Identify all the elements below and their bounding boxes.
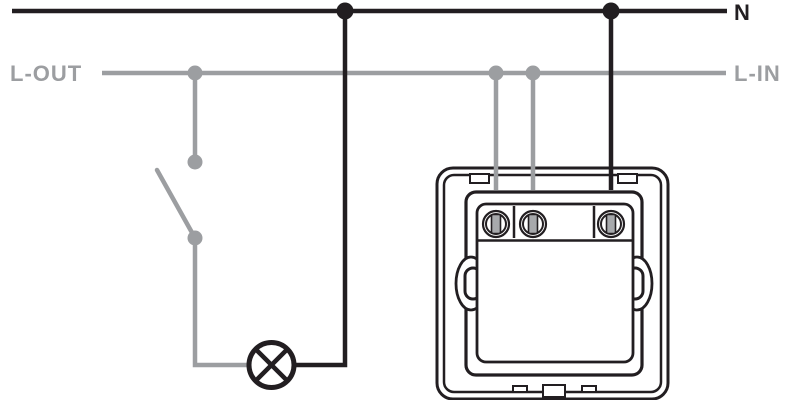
- switch-blade: [157, 170, 195, 238]
- wiring-diagram-canvas: N L-OUT L-IN: [0, 0, 800, 400]
- neutral-wire-to-lamp: [294, 11, 345, 365]
- neutral-label: N: [734, 0, 751, 25]
- switch-to-lamp-wire: [195, 238, 248, 365]
- terminal-screw-3: [598, 211, 624, 237]
- l-out-label: L-OUT: [10, 61, 82, 86]
- terminal-screw-1: [483, 211, 509, 237]
- neutral-junction-dot-lamp: [337, 3, 354, 20]
- lamp-symbol: [249, 343, 294, 388]
- device-bottom-tab-right: [582, 386, 596, 392]
- l-in-label: L-IN: [734, 61, 781, 86]
- terminal-2-screw-slot: [529, 215, 538, 234]
- wiring-diagram: N L-OUT L-IN: [0, 0, 800, 400]
- terminal-1-screw-slot: [492, 215, 501, 234]
- device-bottom-tab-left: [513, 386, 527, 392]
- live-junction-dot-terminal-2: [526, 66, 541, 81]
- device-bottom-tab-center: [543, 385, 565, 397]
- live-junction-dot-terminal-1: [489, 66, 504, 81]
- device-top-notch-left: [470, 174, 489, 183]
- terminal-screw-2: [520, 211, 546, 237]
- switch-lower-contact-dot: [188, 231, 203, 246]
- switch-upper-contact-dot: [188, 155, 203, 170]
- device-top-notch-right: [618, 174, 637, 183]
- live-junction-dot-switch: [188, 66, 203, 81]
- wall-device: [437, 168, 668, 399]
- terminal-3-screw-slot: [607, 215, 616, 234]
- neutral-junction-dot-device: [603, 3, 620, 20]
